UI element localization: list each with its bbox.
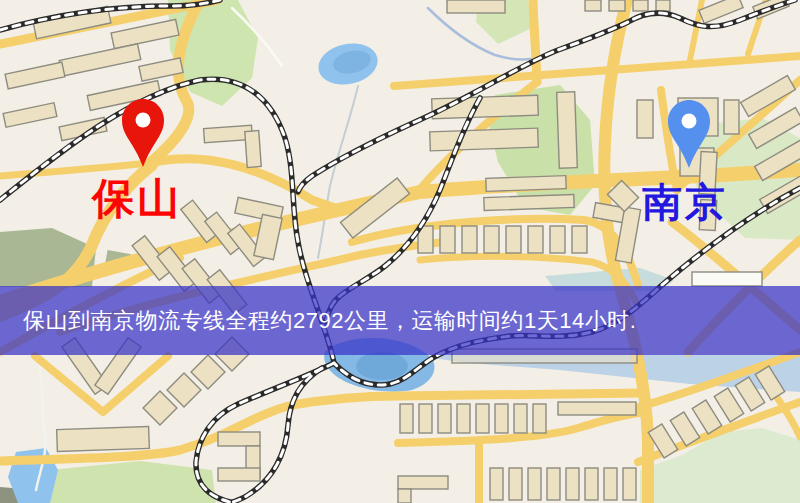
route-info-banner: 保山到南京物流专线全程约2792公里，运输时间约1天14小时.: [0, 286, 800, 355]
origin-label: 保山: [92, 178, 182, 220]
origin-pin-icon[interactable]: [117, 95, 169, 169]
origin-pin-hole: [136, 113, 151, 128]
origin-pin-shape: [122, 99, 164, 167]
destination-label: 南京: [642, 182, 728, 222]
logistics-route-map: 保山 南京 保山到南京物流专线全程约2792公里，运输时间约1天14小时.: [0, 0, 800, 503]
destination-pin-shape: [668, 100, 710, 168]
destination-pin-icon[interactable]: [663, 96, 715, 170]
map-background: [0, 0, 800, 503]
destination-pin-hole: [682, 114, 697, 129]
route-info-text: 保山到南京物流专线全程约2792公里，运输时间约1天14小时.: [23, 306, 636, 336]
